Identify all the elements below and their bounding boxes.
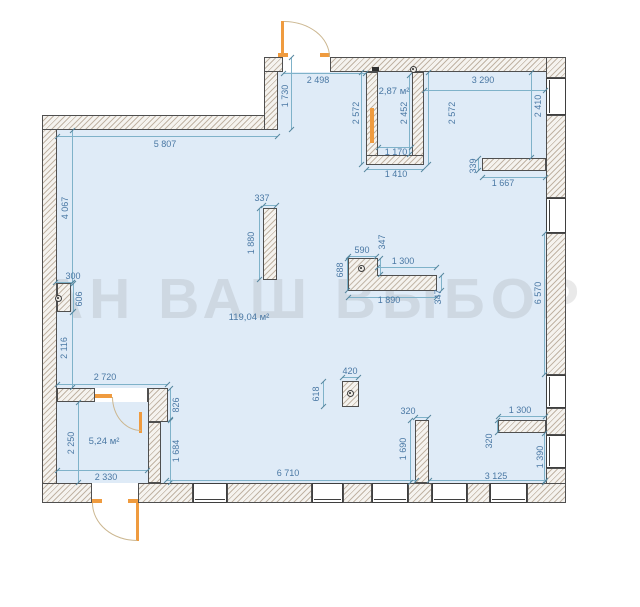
closet-wall-right-lower [148,422,161,483]
wall-bottom-seg3 [227,483,312,503]
dimension-label: 6 570 [533,282,543,305]
dimension-line [55,282,73,283]
partition-stub-bottom [415,420,429,483]
dimension-label: 6 710 [277,468,300,478]
dimension-label: 2 250 [66,432,76,455]
dimension-label: 300 [65,271,80,281]
wall-right-seg4 [546,408,566,435]
shaft-hatch-door [370,108,374,143]
dimension-line [263,205,277,206]
wall-bottom-seg7 [527,483,566,503]
dimension-line [57,470,148,471]
dimension-line [410,420,411,483]
dimension-label: 1 880 [246,232,256,255]
dimension-label: 2 330 [95,472,118,482]
dimension-label: 339 [468,158,478,173]
dimension-label: 2 452 [399,102,409,125]
wall-top-a [264,57,283,72]
dimension-line [57,136,278,137]
dimension-label: 590 [354,245,369,255]
vent-mark-icon [372,67,379,71]
dimension-label: 4 067 [60,197,70,220]
dimension-label: 320 [400,406,415,416]
dimension-line [166,480,417,481]
dimension-label: 1 730 [280,85,290,108]
room-area-closet: 5,24 м² [89,437,120,447]
wall-right-seg1 [546,57,566,78]
dimension-label: 2 498 [307,75,330,85]
dimension-label: 5 807 [154,139,177,149]
dimension-label: 1 410 [385,169,408,179]
dimension-label: 347 [377,234,387,249]
dimension-line [259,208,260,280]
dimension-line [478,158,479,171]
wall-bottom-seg6 [467,483,490,503]
dimension-label: 1 890 [378,295,401,305]
window-right-3 [546,375,566,408]
closet-wall-right-upper [148,388,168,422]
dimension-label: 1 667 [492,178,515,188]
room-area-shaft: 2,87 м² [379,87,410,97]
dimension-label: 618 [311,386,321,401]
dimension-line [348,256,377,257]
wall-right-seg3 [546,233,566,375]
door-leaf-closet [95,394,112,398]
floor-plan: АН ВАШ ВЫБОР [0,0,640,607]
partition-stub-right-bottom [498,420,546,433]
window-bottom-1 [193,483,227,503]
window-right-1 [546,78,566,115]
room-area-main: 119,04 м² [229,313,270,323]
window-bottom-3 [372,483,408,503]
wall-bottom-seg2 [138,483,193,503]
wall-top-left [42,115,278,130]
dimension-line [347,258,348,291]
dimension-label: 688 [335,262,345,277]
dimension-label: 1 690 [398,438,408,461]
closet-wall-top-a [57,388,95,402]
wall-bottom-seg4 [343,483,372,503]
dimension-label: 1 300 [392,256,415,266]
survey-marker-left [55,295,62,302]
window-right-4 [546,435,566,468]
dimension-line [497,420,498,433]
dimension-label: 337 [254,193,269,203]
dimension-line [498,416,546,417]
dimension-line [57,384,168,385]
window-right-2 [546,198,566,233]
dimension-line [72,130,73,283]
dimension-label: 1 684 [171,440,181,463]
dimension-label: 2 720 [94,372,117,382]
dimension-line [283,73,366,74]
dimension-label: 3 290 [472,75,495,85]
dimension-line [428,72,429,165]
dimension-label: 1 390 [535,446,545,469]
dimension-label: 826 [171,397,181,412]
door-swing-arc-exterior [92,503,137,541]
dimension-label: 320 [484,433,494,448]
dimension-label: 1 170 [385,147,408,157]
dimension-line [544,233,545,375]
dimension-label: 2 572 [447,102,457,125]
dimension-label: 2 116 [59,337,69,359]
column-center [263,208,277,280]
shaft-wall-right [412,72,424,165]
dimension-line [377,267,437,268]
wall-left [42,115,57,503]
dimension-label: 606 [74,291,84,306]
dimension-line [342,377,359,378]
dimension-label: 420 [342,366,357,376]
dimension-line [415,417,429,418]
dimension-line [361,72,362,165]
dimension-line [424,90,546,91]
survey-marker-column [347,390,354,397]
dimension-line [531,72,532,158]
dimension-label: 2 410 [533,95,543,118]
window-bottom-4 [432,483,467,503]
window-bottom-2 [312,483,343,503]
dimension-label: 3 125 [485,471,508,481]
dimension-line [72,312,73,388]
dimension-line [291,57,292,130]
survey-marker-lshape [358,265,365,272]
wall-top-b [330,57,566,72]
door-swing-arc-top [284,21,330,57]
partition-stub-right-top [482,158,546,171]
dimension-label: 2 572 [351,102,361,125]
dimension-label: 1 300 [509,405,532,415]
dimension-label: 347 [433,289,443,304]
window-bottom-5 [490,483,527,503]
dimension-line [323,381,324,407]
wall-right-seg2 [546,115,566,198]
wall-bottom-seg5 [408,483,432,503]
wall-bottom-seg1 [42,483,92,503]
